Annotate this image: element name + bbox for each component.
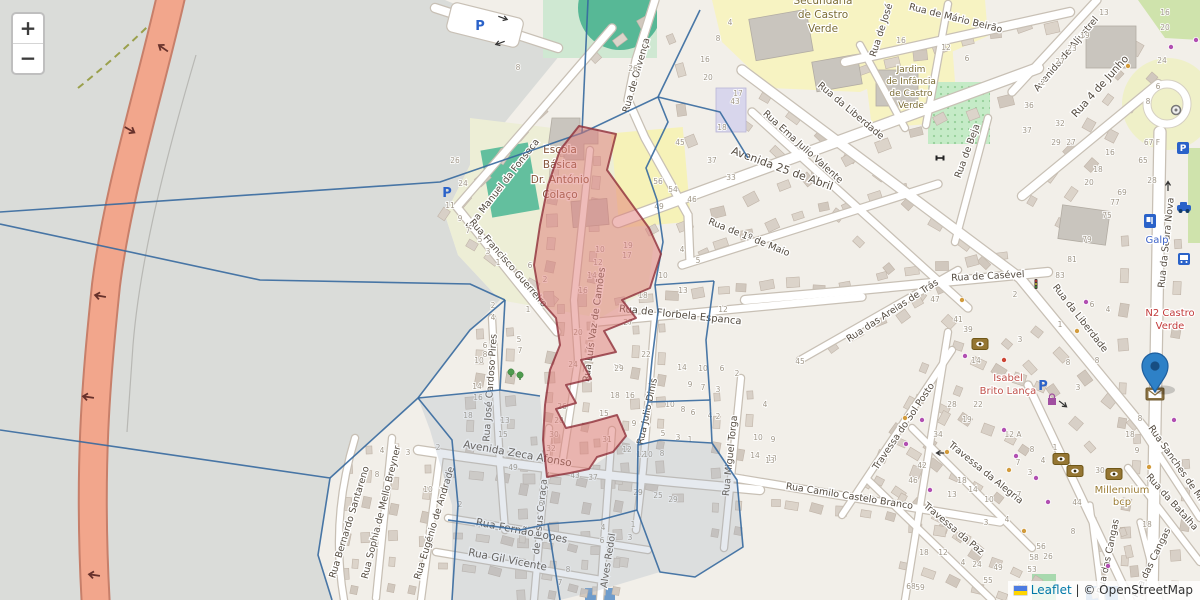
- house-number: 8: [1066, 358, 1071, 367]
- house-number: 18: [717, 123, 727, 132]
- building: [1170, 550, 1181, 562]
- shop-isabel-label: Brito Lança: [980, 386, 1037, 397]
- svg-text:P: P: [475, 19, 485, 34]
- house-number: 19: [962, 415, 972, 424]
- millennium-bank-label: bcp: [1113, 497, 1131, 508]
- marker-pin-hole: [1150, 361, 1159, 370]
- house-number: 16: [1160, 8, 1170, 17]
- osm-link[interactable]: OpenStreetMap: [1099, 583, 1193, 597]
- map-viewport[interactable]: Rua Manuel da FonsecaRua Francisco Guerr…: [0, 0, 1200, 600]
- house-number: 69: [1117, 188, 1127, 197]
- building: [818, 202, 829, 212]
- house-number: 4: [1005, 515, 1010, 524]
- building: [860, 510, 871, 518]
- house-number: 4: [728, 18, 733, 27]
- bank-icon: [972, 339, 988, 350]
- n2-junction-label: Verde: [1156, 321, 1185, 332]
- house-number: 22: [641, 350, 651, 359]
- roundabout-monument-icon: [1172, 106, 1181, 115]
- bus-icon: [1178, 253, 1190, 265]
- purple-poi-dot: [1045, 499, 1050, 504]
- building: [630, 399, 640, 410]
- house-number: 4: [680, 245, 685, 254]
- building: [1120, 268, 1129, 282]
- building: [583, 403, 590, 413]
- house-number: 49: [993, 563, 1003, 572]
- house-number: 6: [965, 54, 970, 63]
- building: [714, 393, 721, 401]
- orange-poi-dot: [1021, 528, 1026, 533]
- house-number: 6: [483, 341, 488, 350]
- millennium-bank-label: Millennium: [1095, 485, 1150, 496]
- building: [633, 326, 639, 334]
- house-number: 8: [1138, 414, 1143, 423]
- house-number: 14: [750, 451, 760, 460]
- zoom-out-button[interactable]: −: [13, 44, 43, 73]
- house-number: 12: [938, 548, 948, 557]
- building: [659, 324, 665, 332]
- house-number: 45: [795, 357, 805, 366]
- purple-poi-dot: [1193, 37, 1198, 42]
- house-number: 5: [661, 429, 666, 438]
- building: [425, 465, 431, 473]
- bank-icon: [1067, 466, 1083, 477]
- house-number: 13: [765, 456, 775, 465]
- building: [630, 367, 640, 379]
- building: [632, 345, 640, 357]
- house-number: 58: [1029, 553, 1039, 562]
- fuel-icon: [1144, 214, 1156, 228]
- house-number: 26: [450, 156, 460, 165]
- parking-icon: P: [475, 19, 485, 34]
- house-number: 12: [718, 305, 728, 314]
- house-number: 41: [953, 315, 963, 324]
- house-number: 3: [1018, 335, 1023, 344]
- kindergarten-label: Jardim: [896, 65, 926, 75]
- school-secundaria-label: de Castro: [798, 9, 848, 21]
- house-number: 29: [614, 364, 624, 373]
- house-number: 3: [406, 448, 411, 457]
- house-number: 9: [632, 419, 637, 428]
- house-number: 8: [716, 34, 721, 43]
- leaflet-link[interactable]: Leaflet: [1031, 583, 1072, 597]
- edge-green-strip: [1188, 148, 1200, 243]
- building: [658, 352, 666, 364]
- house-number: 20: [1160, 23, 1170, 32]
- school-secundaria-label: Secundária: [794, 0, 853, 7]
- house-number: 20: [703, 73, 713, 82]
- building: [736, 283, 746, 292]
- house-number: 9: [771, 435, 776, 444]
- house-number: 18: [957, 476, 967, 485]
- house-number: 55: [983, 576, 993, 585]
- house-number: 8: [681, 405, 686, 414]
- house-number: 4: [763, 400, 768, 409]
- house-number: 3: [1028, 468, 1033, 477]
- house-number: 5: [517, 335, 522, 344]
- house-number: 46: [687, 195, 697, 204]
- attribution-bar: Leaflet | © OpenStreetMap: [1008, 581, 1200, 600]
- house-number: 14: [677, 363, 687, 372]
- house-number: 1: [496, 258, 501, 267]
- house-number: 13: [678, 286, 688, 295]
- building: [612, 586, 620, 595]
- building: [1173, 281, 1182, 294]
- building: [350, 585, 358, 594]
- purple-poi-dot: [962, 353, 967, 358]
- house-number: 26: [628, 64, 638, 73]
- orange-poi-dot: [959, 297, 964, 302]
- house-number: 28: [947, 400, 957, 409]
- parking-box-icon: P: [1177, 142, 1189, 154]
- house-number: 6: [691, 408, 696, 417]
- house-number: 36: [1024, 101, 1034, 110]
- map-canvas[interactable]: Rua Manuel da FonsecaRua Francisco Guerr…: [0, 0, 1200, 600]
- house-number: 29: [1051, 138, 1061, 147]
- house-number: 45: [675, 138, 685, 147]
- house-number: 2: [1041, 78, 1046, 87]
- house-number: 27: [1055, 57, 1065, 66]
- house-number: 4: [1041, 456, 1046, 465]
- building: [657, 419, 664, 428]
- purple-poi-dot: [903, 441, 908, 446]
- house-number: 27: [1066, 138, 1076, 147]
- house-number: 8: [1071, 527, 1076, 536]
- n2-junction-label: N2 Castro: [1145, 308, 1194, 319]
- building: [1117, 417, 1127, 428]
- house-number: 7: [701, 383, 706, 392]
- zoom-in-button[interactable]: +: [13, 14, 43, 44]
- purple-poi-dot: [1168, 44, 1173, 49]
- house-number: 14: [971, 356, 981, 365]
- bank-icon: [1106, 469, 1122, 480]
- orange-poi-dot: [1074, 328, 1079, 333]
- orange-poi-dot: [944, 449, 949, 454]
- kindergarten-label: de Castro: [889, 89, 933, 99]
- house-number: 28: [1147, 176, 1157, 185]
- building: [747, 391, 753, 399]
- house-number: 24: [1157, 56, 1167, 65]
- house-number: 16: [625, 391, 635, 400]
- house-number: 24: [458, 179, 468, 188]
- house-number: 3: [716, 385, 721, 394]
- ukraine-flag-icon: [1014, 586, 1027, 595]
- building: [676, 103, 687, 116]
- house-number: 13: [1099, 8, 1109, 17]
- house-number: 12: [941, 43, 951, 52]
- orange-poi-dot: [1146, 464, 1151, 469]
- orange-poi-dot: [1006, 467, 1011, 472]
- building: [718, 286, 729, 294]
- house-number: 59: [915, 583, 925, 592]
- bank-icon: [1053, 454, 1069, 465]
- house-number: 8: [1030, 445, 1035, 454]
- house-number: 4: [1106, 305, 1111, 314]
- house-number: 10: [474, 356, 484, 365]
- building: [746, 414, 754, 426]
- purple-poi-dot: [919, 417, 924, 422]
- purple-poi-dot: [1171, 417, 1176, 422]
- house-number: 14: [472, 382, 482, 391]
- house-number: 46: [908, 476, 918, 485]
- house-number: 53: [1027, 565, 1037, 574]
- house-number: 77: [1110, 198, 1120, 207]
- house-number: 12 A: [1004, 430, 1022, 439]
- building: [1174, 239, 1182, 249]
- school-secundaria-label: Verde: [808, 23, 838, 35]
- house-number: 10: [658, 271, 668, 280]
- house-number: 1: [1053, 443, 1058, 452]
- house-number: 8: [1095, 356, 1100, 365]
- kindergarten-label: de Infância: [886, 77, 936, 87]
- house-number: 10: [753, 433, 763, 442]
- house-number: 1: [1058, 320, 1063, 329]
- house-number: 7: [466, 226, 471, 235]
- building: [438, 563, 447, 569]
- orange-poi-dot: [902, 415, 907, 420]
- purple-poi-dot: [1105, 563, 1110, 568]
- orange-poi-dot: [1125, 63, 1130, 68]
- house-number: 4: [961, 558, 966, 567]
- house-number: 83: [1055, 271, 1065, 280]
- purple-poi-dot: [1001, 427, 1006, 432]
- building: [389, 557, 396, 566]
- house-number: 8: [1146, 97, 1151, 106]
- house-number: 7: [1017, 490, 1022, 499]
- house-number: 65: [1138, 156, 1148, 165]
- building: [1118, 338, 1129, 351]
- building: [352, 559, 359, 568]
- building: [506, 349, 514, 361]
- purple-poi-dot: [1033, 475, 1038, 480]
- house-number: 6: [1156, 82, 1161, 91]
- house-number: 7: [1016, 458, 1021, 467]
- house-number: 37: [707, 156, 717, 165]
- house-number: 67 F: [1144, 138, 1160, 147]
- building: [785, 501, 799, 511]
- house-number: 26: [1043, 552, 1053, 561]
- building: [786, 277, 800, 288]
- house-number: 24: [972, 560, 982, 569]
- purple-poi-dot: [1083, 299, 1088, 304]
- house-number: 3: [984, 518, 989, 527]
- house-number: 42: [917, 461, 927, 470]
- house-number: 9: [688, 380, 693, 389]
- house-number: 81: [1067, 255, 1077, 264]
- house-number: 22: [973, 400, 983, 409]
- house-number: 39: [963, 325, 973, 334]
- house-number: 8: [375, 470, 380, 479]
- house-number: 10: [698, 364, 708, 373]
- traffic-signals-icon: [1035, 279, 1038, 289]
- house-number: 18: [919, 548, 929, 557]
- galp-fuel-label: Galp: [1145, 235, 1168, 246]
- building: [1130, 565, 1139, 577]
- house-number: 13: [947, 490, 957, 499]
- house-number: 18: [1093, 165, 1103, 174]
- house-number: 30: [1095, 466, 1105, 475]
- house-number: 16: [896, 36, 906, 45]
- purple-poi-dot: [927, 487, 932, 492]
- house-number: 32: [1055, 119, 1065, 128]
- building: [935, 261, 948, 270]
- zoom-control: + −: [11, 12, 45, 75]
- building: [771, 499, 780, 506]
- house-number: 56: [653, 177, 663, 186]
- house-number: 75: [1102, 211, 1112, 220]
- house-number: 3: [486, 247, 491, 256]
- house-number: 37: [1022, 126, 1032, 135]
- house-number: 54: [668, 185, 678, 194]
- house-number: 14: [968, 485, 978, 494]
- house-number: 1: [526, 305, 531, 314]
- house-number: 7: [518, 346, 523, 355]
- house-number: 34: [933, 430, 943, 439]
- building: [366, 446, 372, 454]
- parking-icon: P: [442, 186, 452, 201]
- house-number: 2: [1013, 290, 1018, 299]
- building: [691, 287, 705, 299]
- house-number: 79: [1082, 235, 1092, 244]
- building: [389, 503, 399, 515]
- house-number: 33: [726, 173, 736, 182]
- house-number: 4: [491, 313, 496, 322]
- svg-text:P: P: [1180, 144, 1187, 154]
- house-number: 16: [700, 55, 710, 64]
- house-number: 10: [984, 495, 994, 504]
- house-number: 47: [930, 295, 940, 304]
- building: [582, 382, 591, 392]
- attribution-separator: | ©: [1072, 583, 1100, 597]
- kindergarten-label: Verde: [898, 101, 924, 111]
- house-number: 11: [445, 201, 455, 210]
- house-number: 9: [458, 214, 463, 223]
- house-number: 19: [1080, 31, 1090, 40]
- parking-icon: P: [1038, 379, 1048, 394]
- building: [665, 291, 678, 301]
- building: [408, 585, 417, 594]
- building: [506, 328, 514, 337]
- house-number: 6: [528, 261, 533, 270]
- house-number: 18: [610, 391, 620, 400]
- house-number: 6: [720, 364, 725, 373]
- house-number: 2: [716, 412, 721, 421]
- house-number: 10: [423, 485, 433, 494]
- house-number: 4: [380, 446, 385, 455]
- house-number: 43: [730, 97, 740, 106]
- building: [476, 329, 484, 339]
- house-number: 23: [1067, 44, 1077, 53]
- building: [1118, 303, 1129, 317]
- house-number: 8: [516, 63, 521, 72]
- purple-poi-dot: [1013, 453, 1018, 458]
- house-number: 18: [1142, 520, 1152, 529]
- building: [1121, 236, 1129, 247]
- building: [387, 583, 395, 592]
- house-number: 3: [1076, 383, 1081, 392]
- house-number: 6: [1090, 300, 1095, 309]
- svg-text:P: P: [442, 186, 452, 201]
- house-number: 44: [1072, 498, 1082, 507]
- house-number: 5: [696, 256, 701, 265]
- house-number: 5: [478, 235, 483, 244]
- red-poi-dot: [1001, 357, 1006, 362]
- house-number: 20: [1084, 178, 1094, 187]
- shop-isabel-label: Isabel: [993, 373, 1023, 384]
- building: [388, 530, 397, 540]
- house-number: 56: [1036, 542, 1046, 551]
- house-number: 16: [1105, 148, 1115, 157]
- house-number: 2: [735, 369, 740, 378]
- house-number: 9: [1135, 446, 1140, 455]
- svg-text:P: P: [1038, 379, 1048, 394]
- house-number: 18: [1125, 430, 1135, 439]
